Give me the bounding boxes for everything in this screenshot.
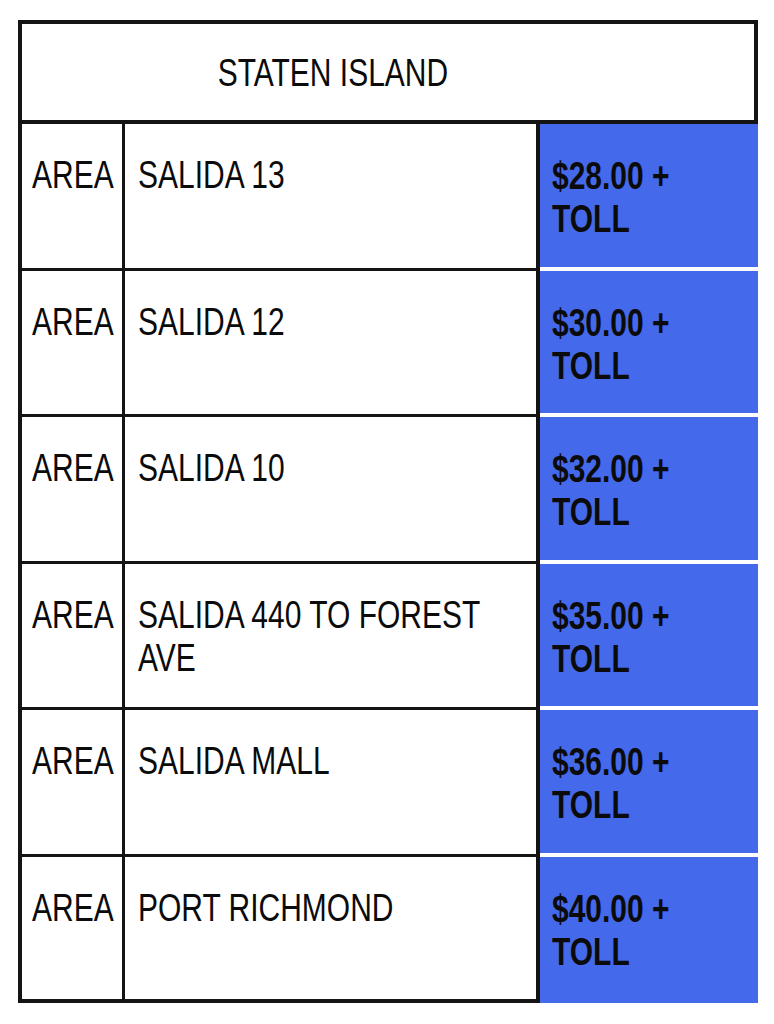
table-title: STATEN ISLAND	[18, 51, 657, 94]
area-label: AREA	[32, 446, 120, 489]
destination-cell: SALIDA 10	[125, 417, 540, 564]
area-cell: AREA	[18, 857, 125, 1004]
destination-label: PORT RICHMOND	[138, 886, 526, 929]
destination-cell: SALIDA 440 TO FOREST AVE	[125, 564, 540, 711]
area-cell: AREA	[18, 710, 125, 857]
area-label: AREA	[32, 300, 120, 343]
destination-cell: PORT RICHMOND	[125, 857, 540, 1004]
area-cell: AREA	[18, 271, 125, 418]
area-cell: AREA	[18, 124, 125, 271]
destination-label: SALIDA 10	[138, 446, 526, 489]
price-label: $32.00 + TOLL	[552, 447, 748, 533]
destination-label: SALIDA 12	[138, 300, 526, 343]
price-label: $40.00 + TOLL	[552, 887, 748, 973]
area-label: AREA	[32, 886, 120, 929]
price-cell: $28.00 + TOLL	[540, 124, 758, 271]
fare-table: STATEN ISLAND AREA SALIDA 13 $28.00 + TO…	[18, 20, 758, 1003]
destination-cell: SALIDA 13	[125, 124, 540, 271]
price-label: $30.00 + TOLL	[552, 301, 748, 387]
price-cell: $36.00 + TOLL	[540, 710, 758, 857]
price-cell: $30.00 + TOLL	[540, 271, 758, 418]
area-label: AREA	[32, 593, 120, 636]
area-cell: AREA	[18, 417, 125, 564]
area-label: AREA	[32, 153, 120, 196]
destination-label: SALIDA 440 TO FOREST AVE	[138, 593, 526, 679]
price-label: $35.00 + TOLL	[552, 594, 748, 680]
page: STATEN ISLAND AREA SALIDA 13 $28.00 + TO…	[0, 0, 774, 1024]
destination-cell: SALIDA MALL	[125, 710, 540, 857]
area-cell: AREA	[18, 564, 125, 711]
price-cell: $40.00 + TOLL	[540, 857, 758, 1004]
price-cell: $35.00 + TOLL	[540, 564, 758, 711]
destination-label: SALIDA MALL	[138, 739, 526, 782]
destination-cell: SALIDA 12	[125, 271, 540, 418]
price-label: $28.00 + TOLL	[552, 154, 748, 240]
price-label: $36.00 + TOLL	[552, 740, 748, 826]
area-label: AREA	[32, 739, 120, 782]
destination-label: SALIDA 13	[138, 153, 526, 196]
table-title-cell: STATEN ISLAND	[18, 20, 758, 124]
price-cell: $32.00 + TOLL	[540, 417, 758, 564]
